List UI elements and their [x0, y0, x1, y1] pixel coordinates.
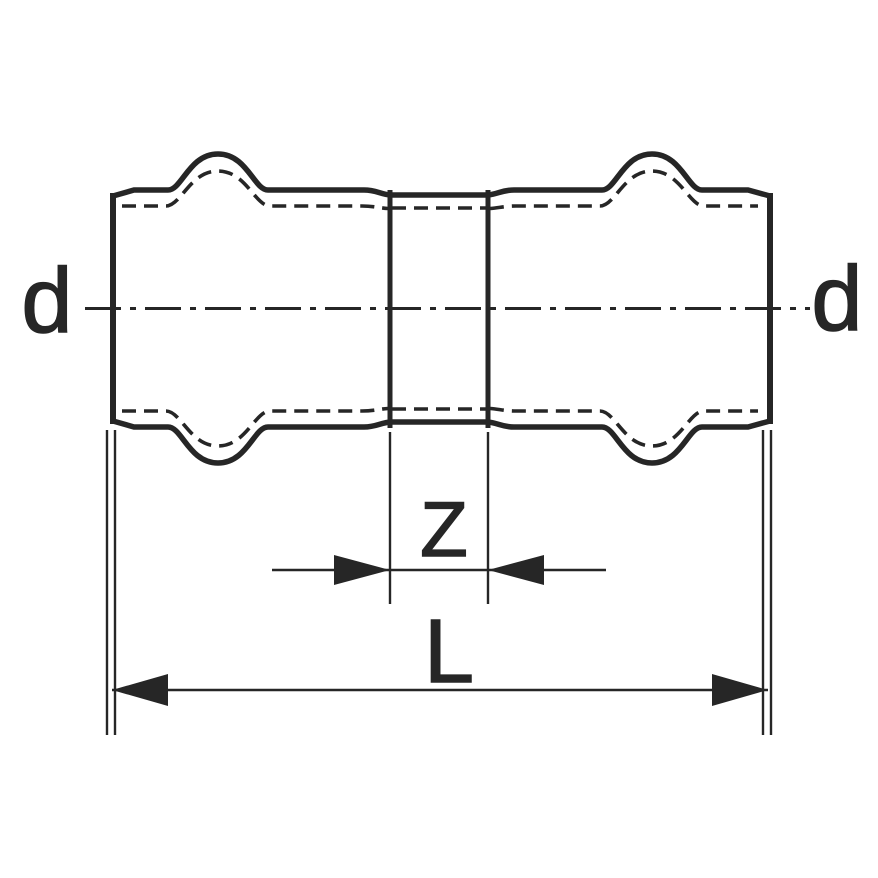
- l-arrow-right: [712, 674, 768, 706]
- body-outer-bottom-profile: [113, 421, 770, 463]
- z-arrow-right: [488, 555, 544, 585]
- drawing-canvas: Z L d d: [0, 0, 878, 878]
- label-diameter-left: d: [21, 250, 72, 352]
- label-dim-z: Z: [420, 485, 468, 573]
- label-dim-l: L: [424, 602, 474, 702]
- z-arrow-left: [334, 555, 390, 585]
- dimension-l: L: [107, 430, 771, 735]
- body-outer-top-profile: [113, 154, 770, 196]
- press-coupling-technical-drawing: Z L d d: [0, 0, 878, 878]
- label-diameter-right: d: [811, 248, 862, 350]
- dimension-z: Z: [272, 432, 606, 604]
- l-arrow-left: [112, 674, 168, 706]
